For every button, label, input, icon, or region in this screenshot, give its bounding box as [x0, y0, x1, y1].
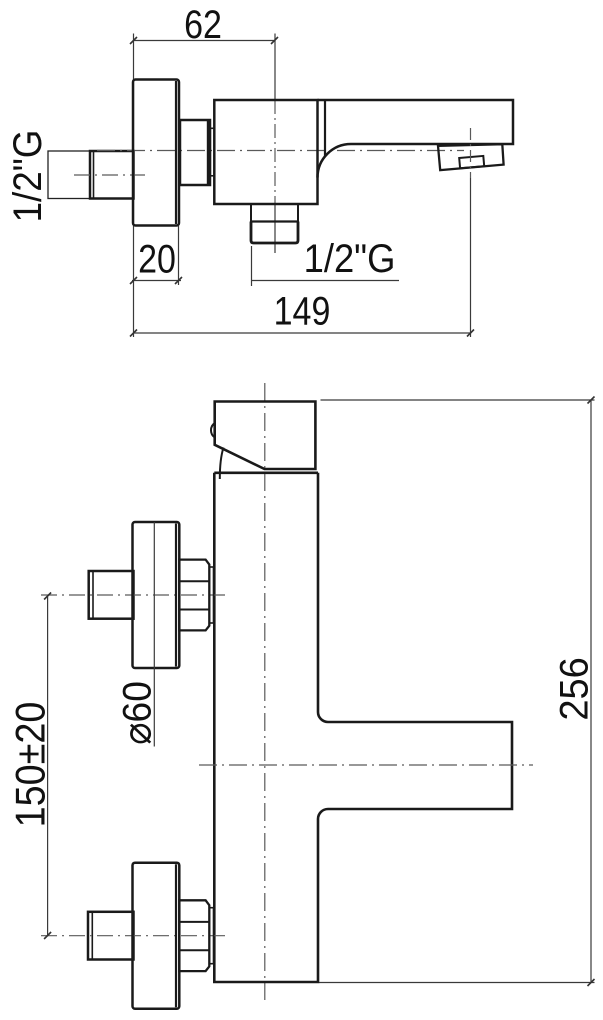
svg-text:256: 256 — [553, 657, 597, 720]
svg-text:1/2"G: 1/2"G — [6, 130, 51, 223]
svg-text:1/2"G: 1/2"G — [304, 236, 396, 281]
svg-text:150±20: 150±20 — [8, 702, 54, 828]
svg-text:⌀60: ⌀60 — [115, 681, 160, 745]
svg-text:149: 149 — [274, 288, 331, 333]
svg-text:20: 20 — [138, 236, 176, 281]
svg-text:62: 62 — [184, 1, 222, 46]
